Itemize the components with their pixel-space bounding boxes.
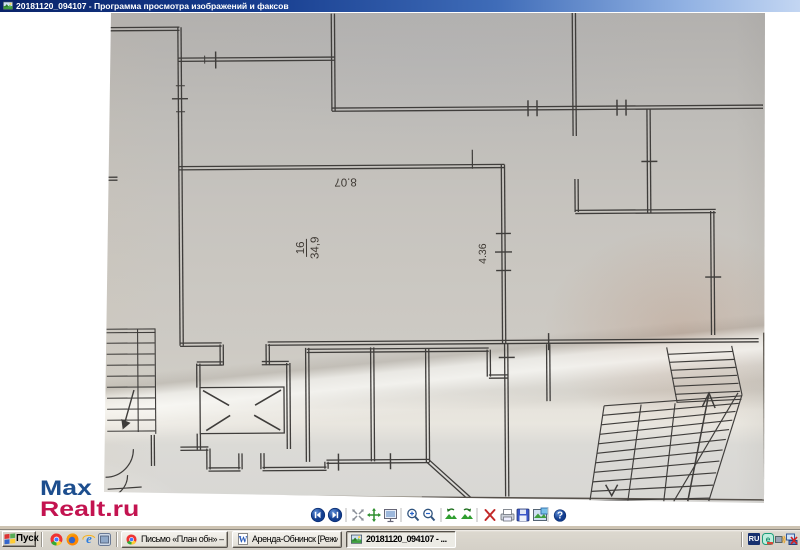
svg-text:8.07: 8.07	[334, 176, 356, 188]
svg-text:W: W	[239, 535, 248, 545]
svg-text:?: ?	[557, 511, 563, 522]
svg-text:e: e	[86, 532, 92, 546]
svg-text:34,9: 34,9	[309, 237, 321, 259]
svg-text:16: 16	[295, 241, 307, 254]
svg-text:4.36: 4.36	[477, 243, 489, 264]
